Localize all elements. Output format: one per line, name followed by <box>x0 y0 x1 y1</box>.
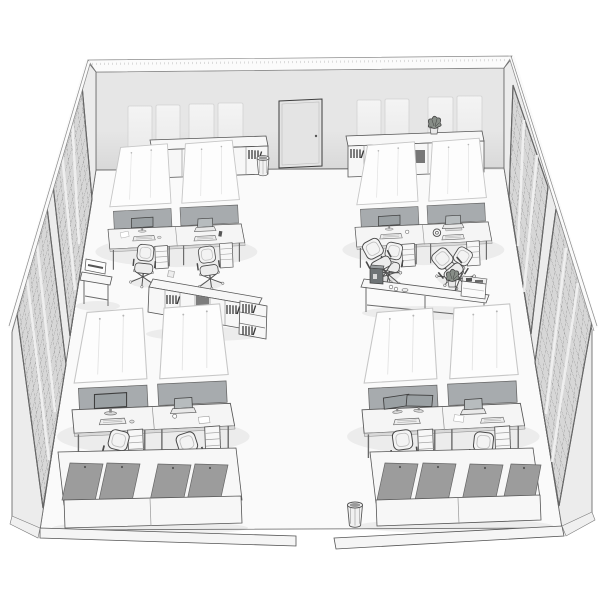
desk-accessory <box>168 271 175 278</box>
laptop-icon <box>194 218 216 232</box>
papers <box>454 415 464 423</box>
notebook <box>198 416 210 423</box>
laptop-icon <box>170 397 196 413</box>
cup-icon <box>394 287 398 291</box>
mouse-icon <box>157 236 161 239</box>
printer-icon <box>461 276 487 299</box>
locker-plinth <box>64 496 242 528</box>
keyboard-icon <box>442 234 465 240</box>
locker-row-left <box>52 448 248 535</box>
keyboard-icon <box>481 417 505 423</box>
laptop-icon <box>460 399 486 415</box>
binder-bookcase <box>239 301 267 339</box>
office-isometric-rendering <box>0 0 600 600</box>
mouse-icon <box>130 420 134 423</box>
locker-row-right <box>357 448 553 533</box>
keyboard-icon <box>394 418 421 425</box>
keyboard-icon <box>380 233 403 239</box>
door-handle <box>315 135 317 137</box>
trash-bin-front-icon <box>348 502 363 527</box>
trash-bin-back-icon <box>257 156 269 176</box>
keyboard-icon <box>99 418 126 425</box>
bowl-icon <box>402 289 408 292</box>
laptop-icon <box>442 215 464 229</box>
mug-icon <box>405 230 408 233</box>
coffee-machine-icon <box>370 265 384 284</box>
mug-icon <box>173 414 177 418</box>
keyboard-icon <box>194 235 217 241</box>
keyboard-icon <box>133 235 156 241</box>
door <box>279 99 322 168</box>
cup-icon <box>389 285 393 289</box>
